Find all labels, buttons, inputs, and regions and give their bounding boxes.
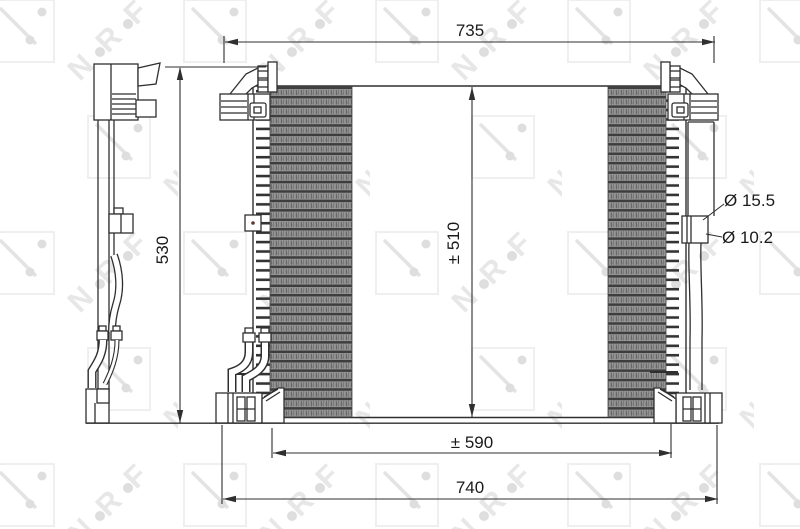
left-fin-band [270, 87, 352, 417]
dim-label-590: ± 590 [451, 433, 493, 452]
dim-label-530: 530 [153, 236, 172, 264]
right-tube-ends [666, 89, 679, 415]
technical-drawing-page: N R F [0, 0, 800, 529]
dim-label-740: 740 [456, 478, 484, 497]
right-fin-band [608, 87, 666, 417]
dim-label-735: 735 [456, 21, 484, 40]
condenser-drawing: N R F [0, 0, 800, 529]
dim-label-510: ± 510 [444, 222, 463, 264]
port-fitting-block [682, 216, 708, 243]
bottom-left-bracket [216, 388, 284, 423]
port-label-small: Ø 10.2 [722, 228, 773, 247]
side-bottom-bracket [86, 389, 109, 423]
port-label-large: Ø 15.5 [724, 191, 775, 210]
bottom-right-bracket [654, 388, 722, 423]
left-sensor-bracket [245, 215, 261, 231]
